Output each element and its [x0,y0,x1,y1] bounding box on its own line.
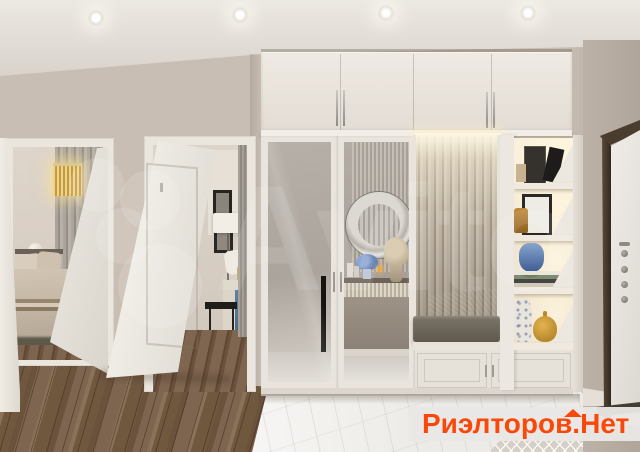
realtor-watermark-suffix: Нет [580,408,629,440]
cabinet-handle [493,92,495,128]
drawer-handle [485,365,487,377]
cabinet-handle [343,90,345,126]
ceiling-spotlight [522,7,534,19]
wardrobe-drawers [415,350,573,390]
wardrobe-upper-cabinets [261,52,572,133]
door-lock [621,266,628,273]
cabinet-handle [486,92,488,128]
cabinet-handle [336,90,338,126]
realtor-watermark: Риэлторов. Нет [408,407,640,441]
door-lock [621,296,628,303]
cabinet-seam [413,54,414,131]
interior-render-photo: Avito Риэлторов. Нет [0,0,640,452]
drawer-handle [492,365,494,377]
cabinet-seam [491,54,492,131]
door-lock [621,281,628,288]
door-lock [621,250,628,257]
avito-logo-circle [70,158,124,212]
ceiling-spotlight [234,9,246,21]
shelf-board [514,343,574,350]
reflected-floor [344,356,409,382]
ceiling-spotlight [380,7,392,19]
reflected-console-base [344,349,409,356]
avito-watermark-text: Avito [215,158,605,338]
cabinet-seam [340,54,341,131]
drawer-front [417,353,487,388]
avito-logo-circle [118,244,202,328]
realtor-watermark-text: Риэлторов. [422,408,580,440]
ceiling-spotlight [90,12,102,24]
entrance-door [611,130,640,426]
house-roof-icon [564,409,582,417]
door-handle [619,242,630,246]
wardrobe-floor-shadow [258,394,580,404]
bench-front [413,342,500,350]
